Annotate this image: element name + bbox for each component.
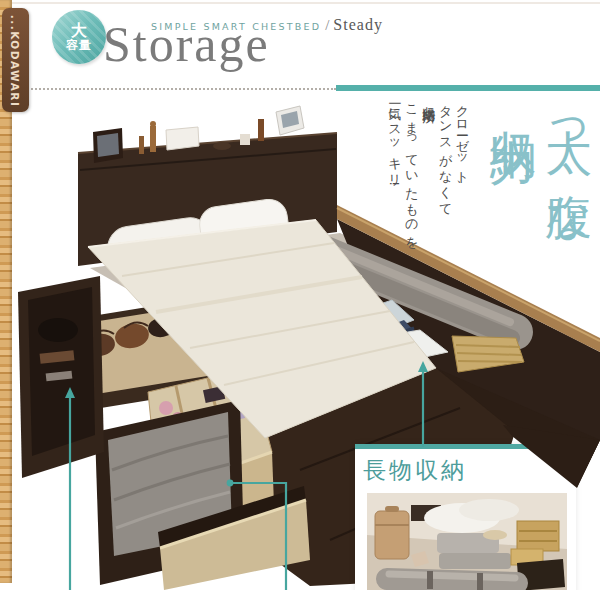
kodawari-label: ...KODAWARI <box>9 11 21 111</box>
subcopy-line: 一気にスッキリ! <box>386 96 403 243</box>
headline-col1: 太っ腹な <box>541 92 596 221</box>
promo-page: ...KODAWARI 大 容量 SIMPLE SMART CHESTBED /… <box>0 0 600 590</box>
vertical-headline: 太っ腹な 収納力 <box>485 92 596 221</box>
callout-title: 長物収納 <box>363 455 576 486</box>
headline-col2: 収納力 <box>485 92 540 221</box>
badge-line1: 大 <box>71 22 87 39</box>
badge-line2: 容量 <box>66 39 92 52</box>
series-line: SIMPLE SMART CHESTBED / Steady <box>151 16 383 34</box>
subcopy-line: クローゼット、 <box>453 96 470 243</box>
long-item-storage-callout: 長物収納 <box>355 444 576 590</box>
series-name: Steady <box>333 16 383 34</box>
kodawari-side-tab: ...KODAWARI <box>2 8 29 112</box>
long-item-storage-photo <box>367 493 567 590</box>
subcopy-line: こまっていたものを <box>402 96 419 243</box>
subcopy-line: 収納場所に <box>419 96 436 243</box>
series-label: SIMPLE SMART CHESTBED <box>151 21 321 32</box>
capacity-badge: 大 容量 <box>52 10 106 64</box>
vertical-subcopy: クローゼット、 タンスがなくて 収納場所に こまっていたものを 一気にスッキリ! <box>386 96 470 243</box>
drawer-far-left <box>18 276 104 478</box>
series-separator: / <box>325 17 329 34</box>
subcopy-line: タンスがなくて <box>436 96 453 243</box>
